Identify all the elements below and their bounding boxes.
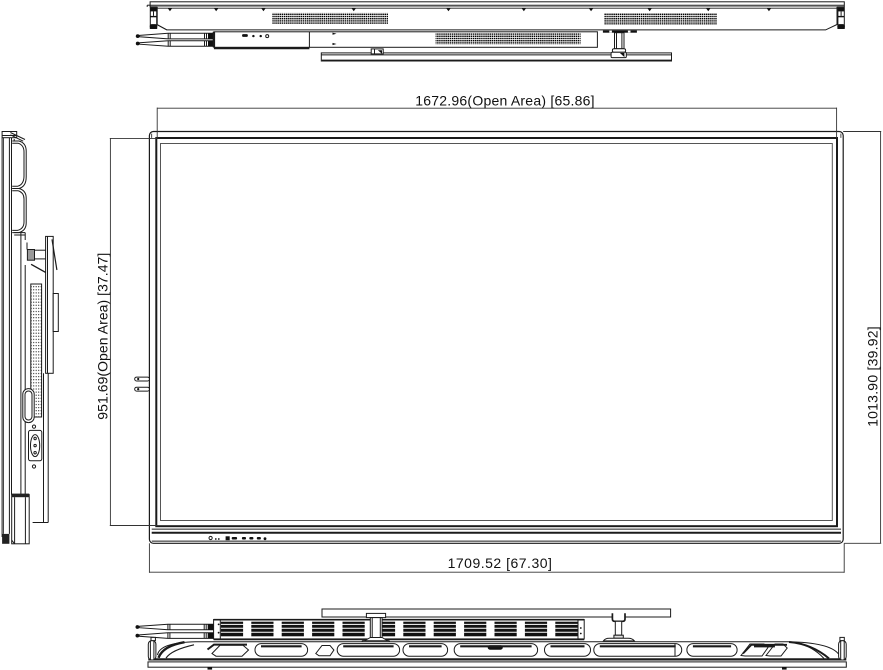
svg-text:1672.96(Open Area) [65.86]: 1672.96(Open Area) [65.86] [415,93,595,109]
svg-text:1709.52 [67.30]: 1709.52 [67.30] [448,555,553,571]
svg-text:1013.90 [39.92]: 1013.90 [39.92] [864,326,880,427]
svg-text:951.69(Open Area) [37.47]: 951.69(Open Area) [37.47] [95,253,111,420]
